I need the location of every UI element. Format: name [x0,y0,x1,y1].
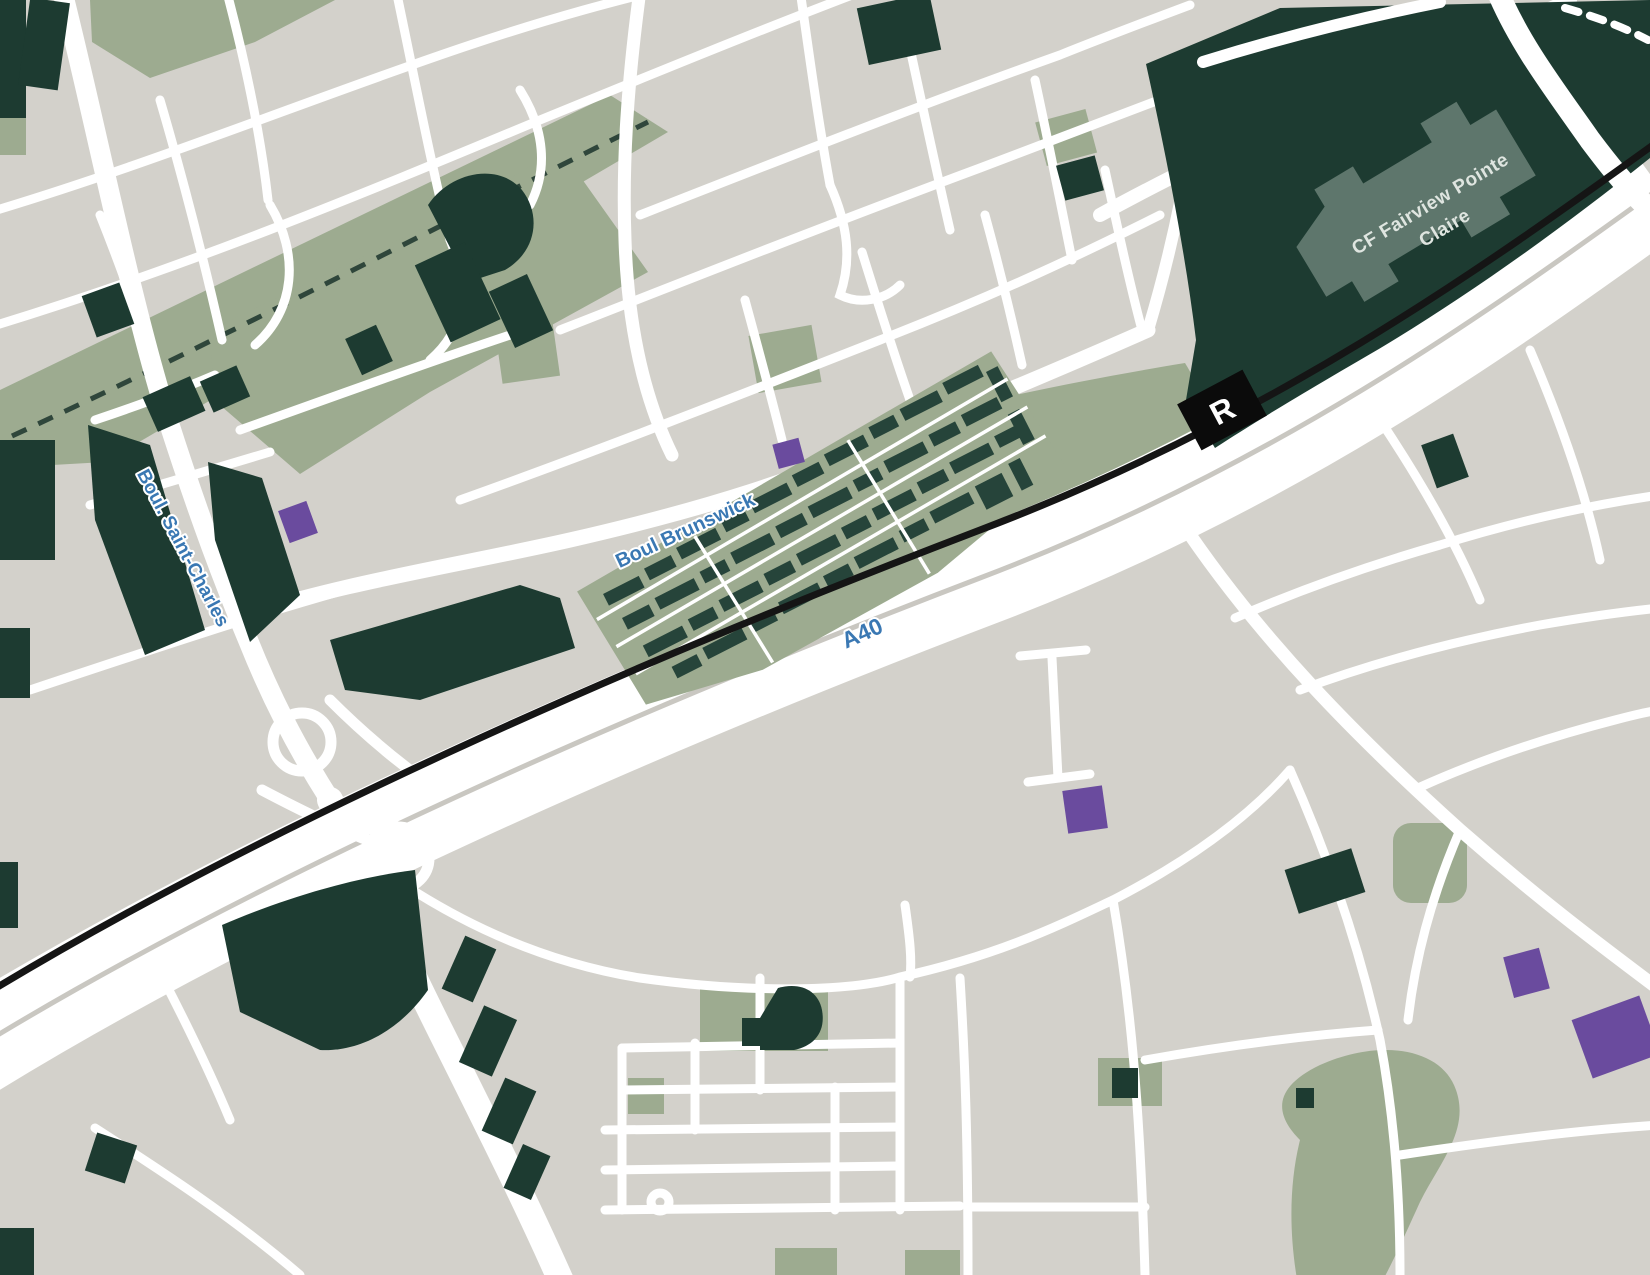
park-area [628,1078,664,1114]
highlight-building [1062,785,1108,833]
map-container: CF Fairview Pointe Claire [0,0,1650,1275]
park-area [775,1248,837,1275]
park-area [905,1250,960,1275]
map-canvas[interactable]: CF Fairview Pointe Claire [0,0,1650,1275]
